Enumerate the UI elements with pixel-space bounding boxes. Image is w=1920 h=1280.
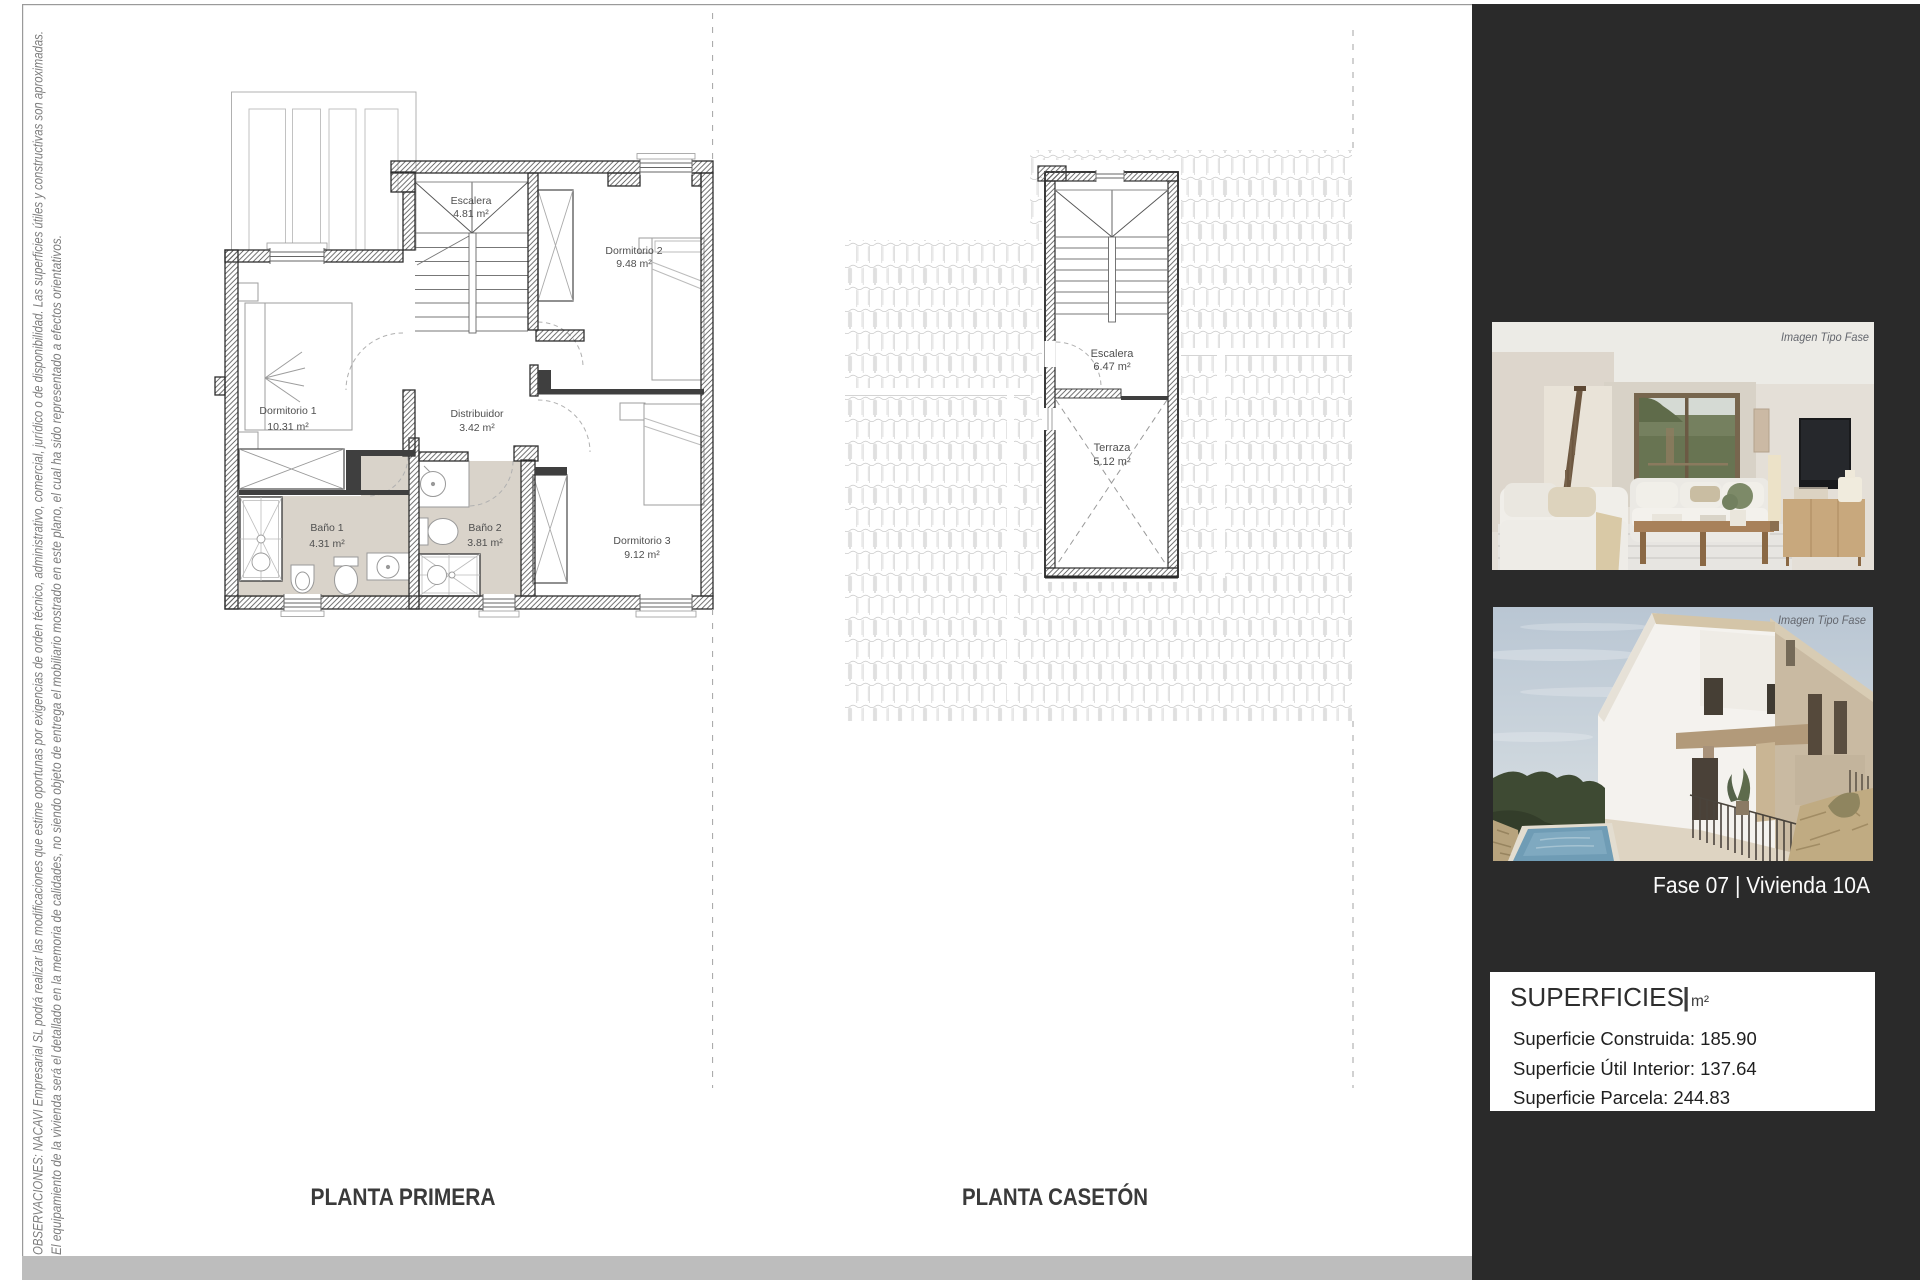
svg-text:SUPERFICIES: SUPERFICIES bbox=[1510, 982, 1684, 1012]
svg-text:Dormitorio 2: Dormitorio 2 bbox=[605, 245, 662, 257]
svg-text:9.12 m²: 9.12 m² bbox=[624, 549, 660, 561]
svg-text:Imagen Tipo Fase: Imagen Tipo Fase bbox=[1781, 332, 1869, 344]
svg-text:9.48 m²: 9.48 m² bbox=[616, 258, 652, 270]
svg-text:Dormitorio 3: Dormitorio 3 bbox=[613, 535, 670, 547]
svg-text:m²: m² bbox=[1691, 993, 1709, 1010]
svg-text:El equipamiento de la vivienda: El equipamiento de la vivienda será el d… bbox=[48, 235, 64, 1255]
svg-text:Dormitorio 1: Dormitorio 1 bbox=[259, 405, 316, 417]
svg-text:Superficie Construida: 185.90: Superficie Construida: 185.90 bbox=[1513, 1028, 1757, 1049]
svg-text:4.31 m²: 4.31 m² bbox=[309, 538, 345, 550]
svg-text:Distribuidor: Distribuidor bbox=[450, 408, 504, 420]
svg-text:Imagen Tipo Fase: Imagen Tipo Fase bbox=[1778, 615, 1866, 627]
svg-text:PLANTA PRIMERA: PLANTA PRIMERA bbox=[311, 1184, 496, 1211]
svg-text:Superficie Parcela: 244.83: Superficie Parcela: 244.83 bbox=[1513, 1087, 1730, 1108]
svg-text:Baño 2: Baño 2 bbox=[468, 522, 501, 534]
svg-text:5.12 m²: 5.12 m² bbox=[1093, 456, 1131, 468]
svg-text:Terraza: Terraza bbox=[1094, 442, 1132, 454]
svg-text:OBSERVACIONES: NACAVI Empresar: OBSERVACIONES: NACAVI Empresarial SL pod… bbox=[30, 31, 46, 1255]
svg-text:10.31 m²: 10.31 m² bbox=[267, 421, 309, 433]
svg-text:Superficie Útil Interior: 137.: Superficie Útil Interior: 137.64 bbox=[1513, 1058, 1757, 1079]
svg-text:3.42 m²: 3.42 m² bbox=[459, 422, 495, 434]
svg-text:Escalera: Escalera bbox=[451, 195, 492, 207]
svg-text:Baño 1: Baño 1 bbox=[310, 522, 343, 534]
svg-text:3.81 m²: 3.81 m² bbox=[467, 537, 503, 549]
svg-text:Escalera: Escalera bbox=[1091, 348, 1135, 360]
svg-text:4.81 m²: 4.81 m² bbox=[453, 208, 489, 220]
svg-text:Fase 07 | Vivienda 10A: Fase 07 | Vivienda 10A bbox=[1653, 872, 1871, 898]
svg-text:PLANTA CASETÓN: PLANTA CASETÓN bbox=[962, 1183, 1148, 1211]
svg-text:6.47 m²: 6.47 m² bbox=[1093, 361, 1131, 373]
